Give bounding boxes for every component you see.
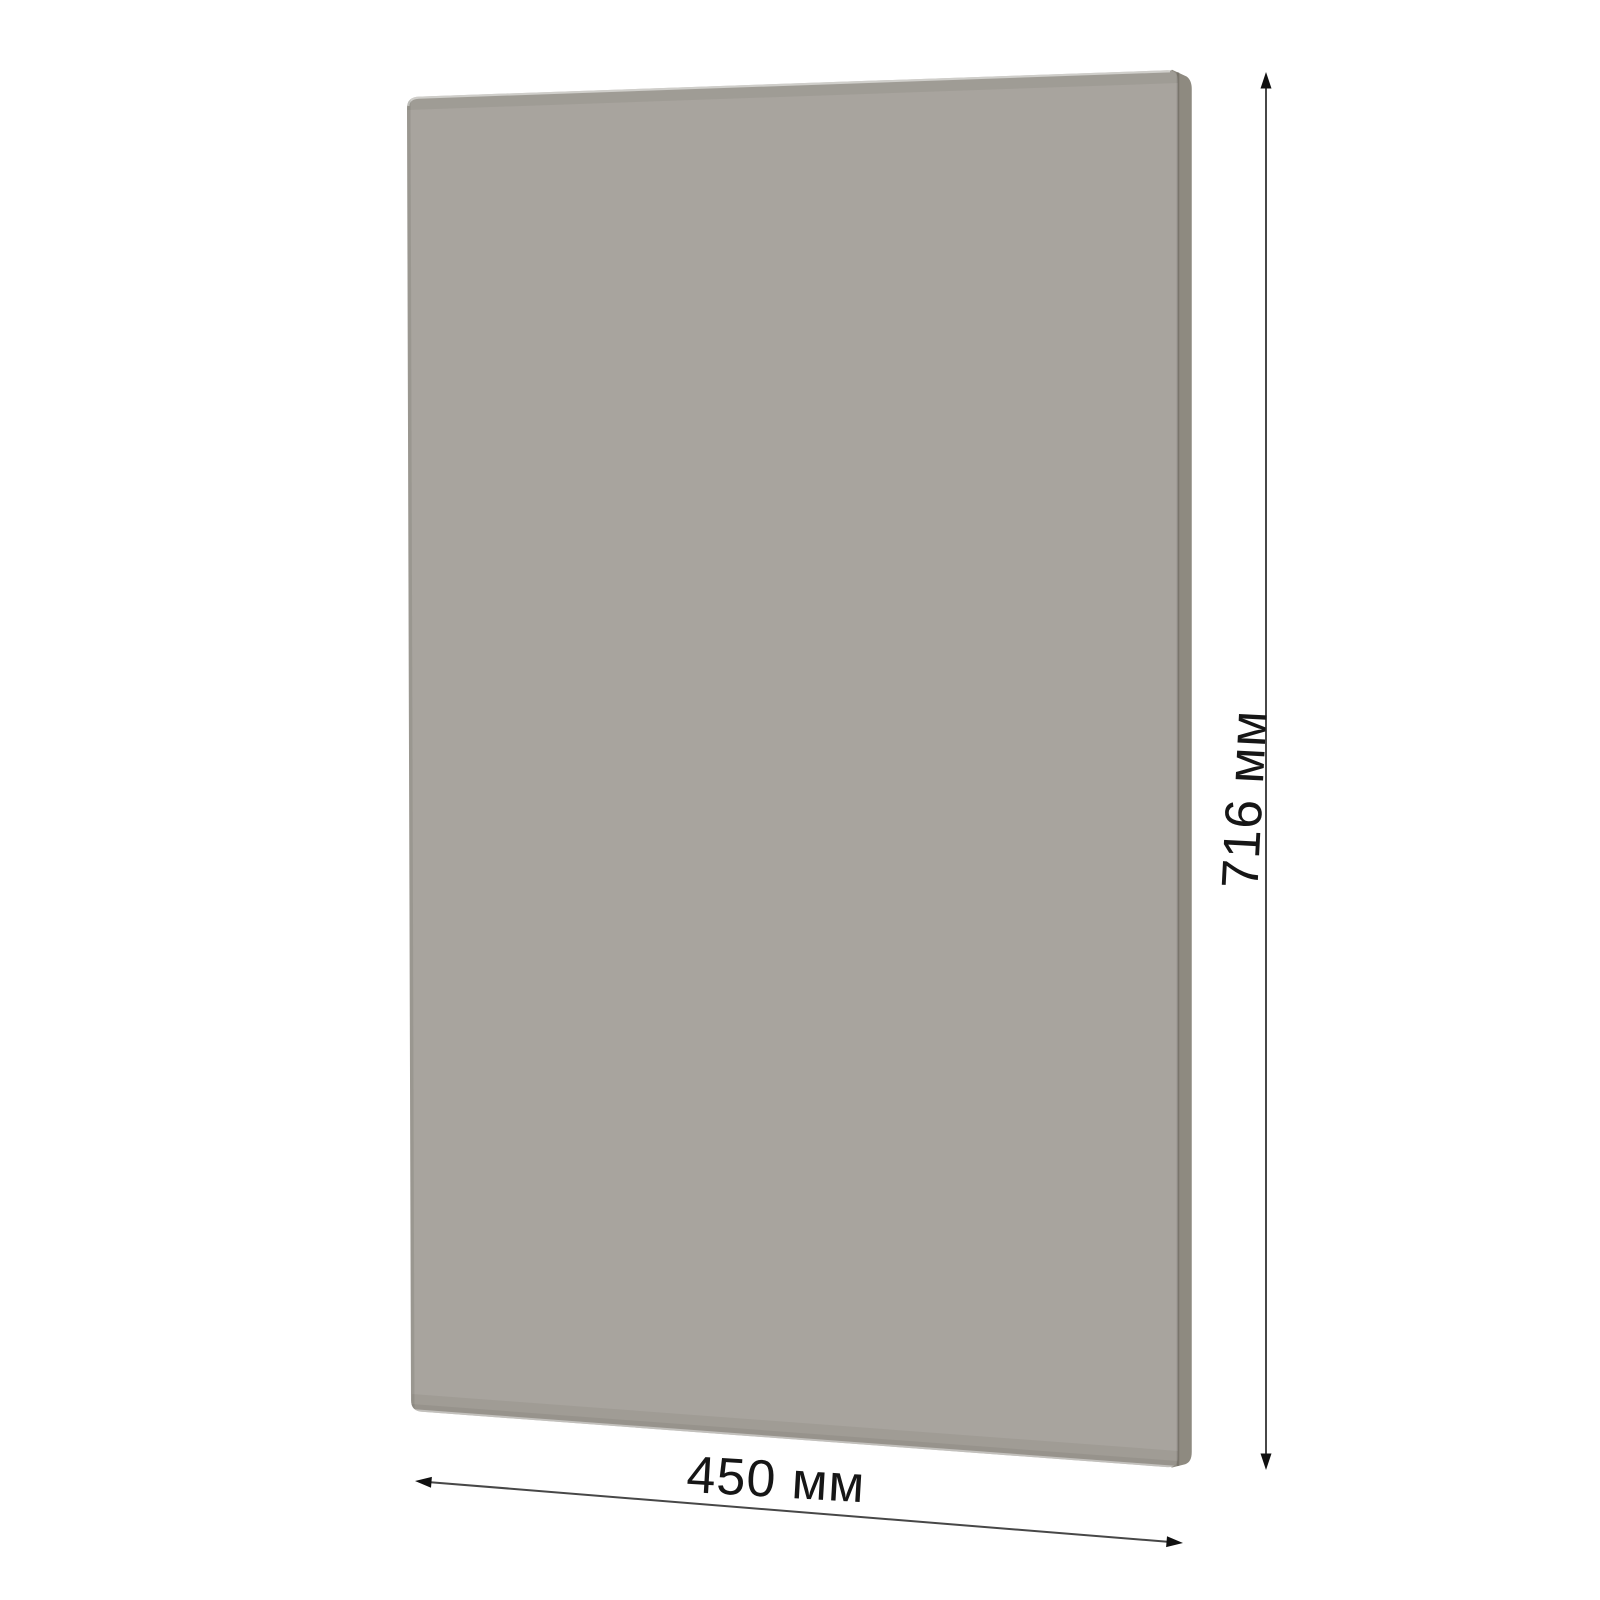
diagram-canvas: 716 мм 450 мм — [0, 0, 1600, 1600]
arrow-up-icon — [1261, 72, 1272, 89]
height-dimension: 716 мм — [1211, 72, 1278, 1470]
panel-front-face — [407, 70, 1178, 1467]
width-dimension: 450 мм — [415, 1446, 1184, 1549]
width-dimension-label: 450 мм — [685, 1446, 867, 1514]
height-dimension-label: 716 мм — [1211, 708, 1278, 890]
product-dimension-diagram: 716 мм 450 мм — [0, 0, 1600, 1600]
panel — [407, 70, 1191, 1468]
arrow-down-icon — [1261, 1454, 1272, 1471]
arrow-right-icon — [1166, 1536, 1183, 1548]
arrow-left-icon — [415, 1476, 432, 1488]
